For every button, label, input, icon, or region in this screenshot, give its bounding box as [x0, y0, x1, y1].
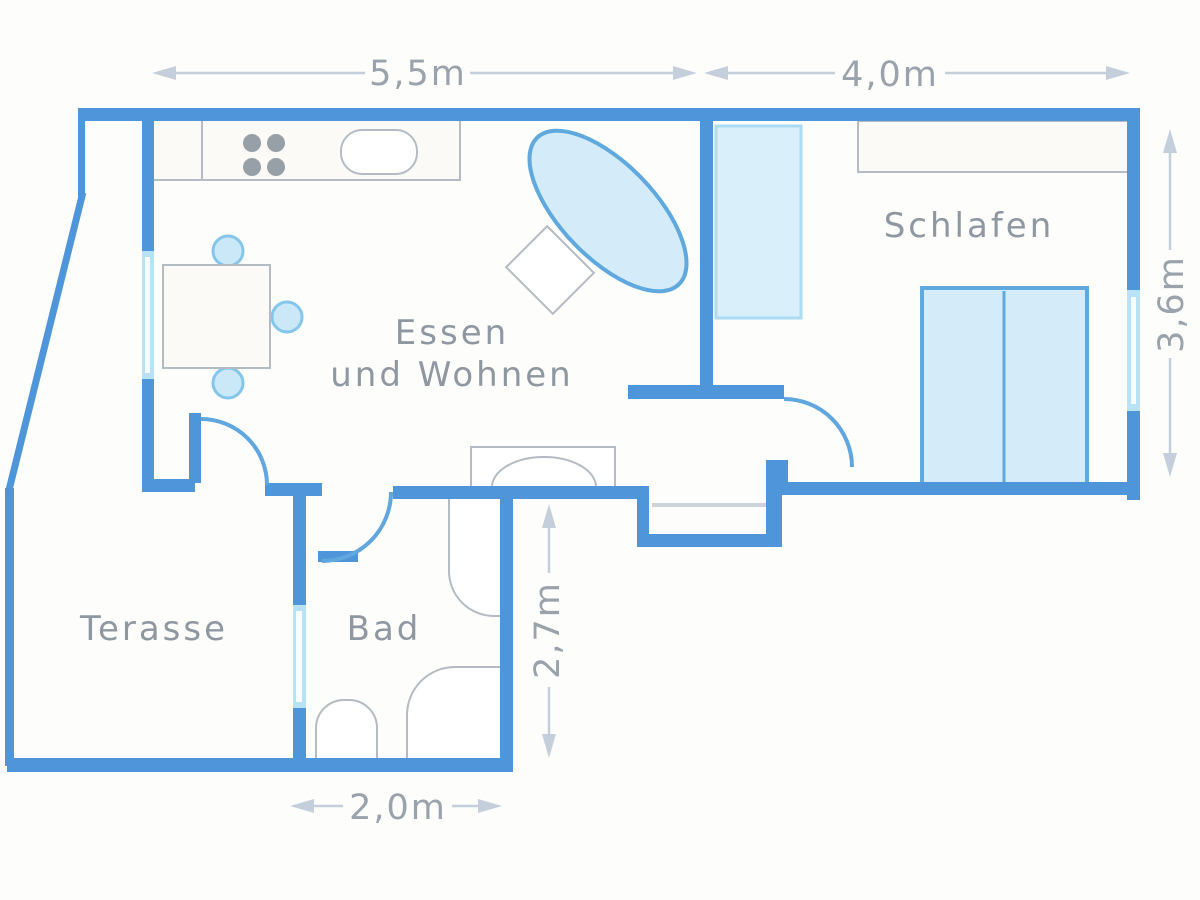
floor-plan-svg: 5,5m 4,0m 3,6m 2,7m 2,0m Essen und Wohne…	[0, 0, 1200, 900]
dining-area	[163, 236, 302, 398]
arrow-right-icon	[673, 66, 697, 80]
dining-chair	[213, 368, 243, 398]
terrace-door-arc	[201, 419, 267, 485]
arrow-left-icon	[152, 66, 176, 80]
wall-terrace-left	[5, 488, 14, 766]
toilet	[316, 700, 377, 760]
kitchen-area	[153, 120, 460, 180]
window-living-left-glass	[145, 257, 150, 373]
dining-table	[163, 265, 270, 368]
arrow-up-icon	[542, 504, 556, 528]
stove-burner	[267, 158, 285, 176]
wall-living-left-lower	[142, 379, 154, 489]
wall-entry-alcove-bottom	[637, 534, 782, 547]
wall-living-bedroom-divider	[700, 121, 713, 393]
bath-door-arc	[322, 492, 391, 561]
kitchen-sink	[341, 130, 417, 174]
wall-terrace-bath-lower	[293, 708, 306, 762]
dimension-top-left: 5,5m	[152, 54, 697, 94]
wall-living-left-upper	[142, 121, 154, 251]
arrow-up-icon	[1163, 129, 1177, 153]
wall-terrace-bath-upper	[293, 489, 306, 605]
dining-chair	[213, 236, 243, 266]
wall-bedroom-bottom	[780, 482, 1140, 495]
dim-label-middle-vertical: 2,7m	[528, 581, 568, 679]
arrow-down-icon	[1163, 453, 1177, 477]
arrow-down-icon	[542, 734, 556, 758]
wall-living-bottom-a	[142, 479, 195, 492]
dimension-top-right: 4,0m	[704, 55, 1130, 95]
wall-right-upper	[1127, 108, 1140, 290]
window-bathroom-glass	[296, 611, 302, 702]
stove-burner	[243, 134, 261, 152]
floor-plan-page: 5,5m 4,0m 3,6m 2,7m 2,0m Essen und Wohne…	[0, 0, 1200, 900]
wall-terrace-top-stub	[78, 112, 85, 198]
room-label-terrace: Terasse	[79, 609, 228, 649]
living-area	[471, 105, 713, 487]
shower	[449, 492, 503, 616]
arrow-right-icon	[478, 799, 502, 813]
wall-bottom	[7, 758, 513, 772]
dim-label-top-right: 4,0m	[841, 55, 939, 95]
dimension-right-side: 3,6m	[1152, 129, 1192, 477]
stove-burner	[267, 134, 285, 152]
dimension-bottom: 2,0m	[290, 788, 502, 828]
wall-top	[78, 108, 1140, 121]
dining-chair	[272, 302, 302, 332]
wardrobe-closet	[858, 121, 1130, 172]
dim-label-top-left: 5,5m	[369, 54, 467, 94]
dim-label-bottom: 2,0m	[349, 788, 447, 828]
dimension-middle-vertical: 2,7m	[528, 504, 568, 758]
stove-burner	[243, 158, 261, 176]
window-bedroom-right-glass	[1131, 297, 1136, 404]
arrow-right-icon	[1106, 66, 1130, 80]
wall-entry-top	[628, 385, 784, 399]
room-label-bedroom: Schlafen	[884, 206, 1055, 246]
wardrobe	[716, 126, 801, 318]
wall-bath-right	[500, 492, 513, 772]
wall-terrace-slant	[9, 196, 82, 490]
wall-living-bottom-c	[393, 486, 649, 499]
arrow-left-icon	[704, 66, 728, 80]
room-label-living-line2: und Wohnen	[330, 355, 573, 395]
dim-label-right-side: 3,6m	[1152, 255, 1192, 353]
room-label-living-line1: Essen	[395, 313, 509, 353]
bathtub	[407, 667, 512, 760]
terrace-door-leaf	[189, 413, 201, 483]
arrow-left-icon	[290, 799, 314, 813]
entry-threshold	[652, 503, 766, 507]
bedroom-area	[716, 121, 1130, 487]
entry-door-arc	[784, 399, 852, 467]
room-label-bathroom: Bad	[347, 609, 422, 649]
